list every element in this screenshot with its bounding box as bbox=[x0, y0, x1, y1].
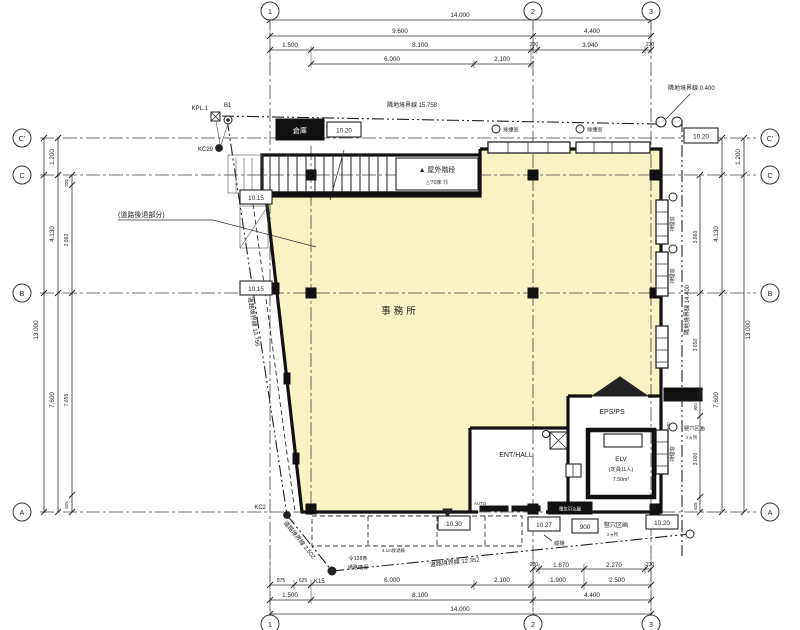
level-bottom-1: 10.30 bbox=[446, 521, 462, 528]
window-ref-icon bbox=[669, 245, 677, 253]
floor-plan-drawing: 隣地境界線 15.758 隣地境界線 0.400 隣地境界線 14.400 道路… bbox=[0, 0, 800, 630]
grid-bubble-c-r: C bbox=[767, 173, 772, 180]
dim: 1.900 bbox=[550, 577, 566, 584]
dim: 2.100 bbox=[494, 577, 510, 584]
level-top-right: 10.20 bbox=[693, 134, 709, 141]
shaft-note-right: 竪穴区画 bbox=[684, 424, 705, 432]
survey-point-kc2-icon bbox=[284, 512, 291, 519]
dim: 14.000 bbox=[450, 606, 470, 613]
room-ent-hall: ENT/HALL bbox=[499, 452, 533, 459]
top-dimensions: 14.000 9.600 4.400 1.500 8.100 230 3.940… bbox=[267, 11, 654, 68]
boundary-pin-icon bbox=[672, 117, 682, 127]
grid-bubble-3b: 3 bbox=[649, 622, 653, 629]
dim: 230 bbox=[530, 42, 539, 48]
boundary-label-top: 隣地境界線 15.758 bbox=[387, 101, 438, 109]
dim: 2.500 bbox=[609, 577, 625, 584]
bottom-dimensions: 230 1.670 2.270 230 875 625 6.000 2.100 … bbox=[267, 558, 654, 618]
grid-bubble-cp-r: C' bbox=[767, 136, 773, 143]
grid-bubbles-bottom: 1 2 3 bbox=[261, 615, 660, 630]
dim: 1.200 bbox=[735, 149, 742, 165]
equipment-black-box bbox=[664, 388, 702, 401]
point-label-k15: K15 bbox=[314, 579, 325, 585]
level-top-left: 10.20 bbox=[336, 128, 352, 135]
level-box-top-right: 10.20 bbox=[684, 128, 718, 143]
dim: 4.130 bbox=[713, 226, 720, 242]
grid-bubble-1b: 1 bbox=[268, 622, 272, 629]
dim: 230 bbox=[646, 562, 655, 568]
dim: 205 bbox=[64, 179, 69, 187]
smoke-window-label: 排煙窓 bbox=[668, 268, 676, 284]
elevator: ELV (定員11人) 7.50m² bbox=[588, 430, 654, 497]
boundary-pin-icon bbox=[686, 530, 694, 538]
grid-bubble-2: 2 bbox=[531, 9, 535, 16]
dim: 1.500 bbox=[282, 42, 298, 49]
dim: 4.400 bbox=[584, 592, 600, 599]
grid-bubble-a: A bbox=[20, 510, 25, 517]
setback-note-2: 4.1m後退線 bbox=[382, 547, 406, 554]
dim: 2.270 bbox=[606, 562, 622, 569]
level-left-2: 10.15 bbox=[248, 286, 264, 293]
dim: 13.000 bbox=[33, 320, 40, 340]
office-floor-fill bbox=[266, 149, 661, 512]
shaft-subnote: 2ヵ所 bbox=[607, 531, 619, 538]
dim: 1.200 bbox=[49, 149, 56, 165]
elv-area: 7.50m² bbox=[613, 477, 629, 483]
electric-panel-label: 電気引込盤 bbox=[559, 506, 582, 513]
boundary-label-top-right: 隣地境界線 0.400 bbox=[668, 84, 715, 92]
dim: 8.100 bbox=[412, 42, 428, 49]
smoke-window-label: 排煙窓 bbox=[668, 446, 676, 462]
dim: 13.000 bbox=[745, 320, 752, 340]
point-label-kpl1: KPL.1 bbox=[192, 106, 209, 112]
elv-label: ELV bbox=[615, 456, 627, 463]
grid-bubble-1: 1 bbox=[268, 9, 272, 16]
smoke-windows-top: 排煙窓 排煙窓 bbox=[488, 125, 650, 153]
dim: 2.100 bbox=[494, 56, 510, 63]
dim: 7.600 bbox=[49, 392, 56, 408]
smoke-window-label: 排煙窓 bbox=[668, 216, 676, 232]
dim: 1.500 bbox=[282, 592, 298, 599]
ordinance-note-1: 令128条 bbox=[348, 554, 367, 562]
grid-bubble-b: B bbox=[20, 291, 25, 298]
room-eps-ps: EPS/PS bbox=[599, 409, 625, 416]
dim: 230 bbox=[530, 562, 539, 568]
dim: 3.940 bbox=[582, 42, 598, 49]
dim: 6.000 bbox=[384, 577, 400, 584]
dim: 625 bbox=[64, 501, 69, 509]
dim: 4.400 bbox=[584, 28, 600, 35]
smoke-windows-right: 排煙窓 排煙窓 排煙窓 bbox=[656, 193, 677, 474]
survey-point-kc29-icon bbox=[216, 145, 223, 152]
dim: 8.100 bbox=[412, 592, 428, 599]
bottom-annotations: 令128条 通路確保 4.1m後退線 10.30 10.27 縦樋 900 竪穴… bbox=[312, 515, 678, 571]
storage-annotation: 倉庫 10.20 bbox=[276, 119, 361, 140]
left-dimensions: 13.000 1.200 4.130 7.600 205 2.860 7.655… bbox=[33, 135, 75, 515]
dim-940: 940 bbox=[666, 422, 671, 430]
dim: 9.600 bbox=[392, 28, 408, 35]
hall-equipment bbox=[543, 431, 582, 478]
box-900: 900 bbox=[580, 524, 591, 531]
dim: 1.670 bbox=[553, 562, 569, 569]
point-label-kc2: KC2 bbox=[254, 505, 266, 511]
grid-bubble-3: 3 bbox=[649, 9, 653, 16]
window-ref-icon bbox=[669, 193, 677, 201]
grid-bubble-a-r: A bbox=[768, 510, 773, 517]
smoke-window-label: 排煙窓 bbox=[587, 126, 603, 134]
survey-point-k15-icon bbox=[328, 567, 336, 575]
dim: 3.000 bbox=[693, 453, 699, 466]
storage-label: 倉庫 bbox=[293, 126, 307, 135]
setback-note: (道路後退部分) bbox=[118, 210, 165, 219]
dim: 3.650 bbox=[693, 339, 699, 352]
dim: 2.860 bbox=[64, 234, 70, 247]
level-bottom-2: 10.27 bbox=[536, 522, 552, 529]
smoke-window-label: 排煙窓 bbox=[503, 126, 519, 134]
dim: 625 bbox=[693, 502, 698, 510]
auto-door-label: AUTO bbox=[474, 501, 487, 506]
dim: 875 bbox=[277, 578, 286, 584]
grid-bubble-c: C bbox=[19, 173, 24, 180]
dim: 3.860 bbox=[693, 231, 699, 244]
shaft-note: 竪穴区画 bbox=[604, 521, 628, 529]
grid-bubbles-left: C' C B A bbox=[13, 129, 31, 521]
dim: 7.655 bbox=[64, 394, 70, 407]
room-office: 事務所 bbox=[381, 305, 419, 317]
dim: 625 bbox=[299, 578, 308, 584]
dim: 4.130 bbox=[49, 226, 56, 242]
level-left-1: 10.15 bbox=[248, 195, 264, 202]
boundary-pin-icon bbox=[656, 117, 666, 127]
point-label-kc29: KC29 bbox=[198, 147, 214, 153]
equipment-box-icon bbox=[566, 464, 581, 477]
dim: 14.000 bbox=[450, 12, 470, 19]
boundary-label-right: 隣地境界線 14.400 bbox=[683, 284, 691, 335]
grid-bubbles-right: C' C B A bbox=[761, 129, 779, 521]
elv-capacity: (定員11人) bbox=[609, 465, 634, 473]
ordinance-note-2: 通路確保 bbox=[348, 563, 370, 571]
right-dimensions: 13.000 1.200 4.130 7.600 3.860 3.650 900… bbox=[693, 135, 752, 515]
stair-sublabel: △'70床 ⑮ bbox=[426, 178, 449, 186]
window-ref-icon bbox=[492, 125, 500, 133]
dim: 7.600 bbox=[713, 392, 720, 408]
dim: 6.000 bbox=[384, 56, 400, 63]
grid-bubble-2b: 2 bbox=[531, 622, 535, 629]
downpipe-label: 縦樋 bbox=[554, 539, 564, 547]
shaft-subnote-right: 2ヵ所 bbox=[686, 434, 698, 441]
grid-bubble-b-r: B bbox=[768, 291, 773, 298]
grid-bubble-cp: C' bbox=[19, 136, 25, 143]
floor-plan-sheet: 隣地境界線 15.758 隣地境界線 0.400 隣地境界線 14.400 道路… bbox=[0, 0, 800, 630]
window-ref-icon bbox=[576, 125, 584, 133]
dim: 230 bbox=[646, 42, 655, 48]
dim: 900 bbox=[693, 403, 698, 411]
point-label-b1: B1 bbox=[224, 103, 232, 109]
boundary-label-bottom: 道路境界線 12.352 bbox=[429, 555, 480, 568]
level-bottom-3: 10.20 bbox=[654, 520, 670, 527]
boundary-label-left: 道路境界線 13.756 bbox=[246, 296, 262, 347]
stair-label: ▲ 屋外階段 bbox=[419, 165, 456, 174]
